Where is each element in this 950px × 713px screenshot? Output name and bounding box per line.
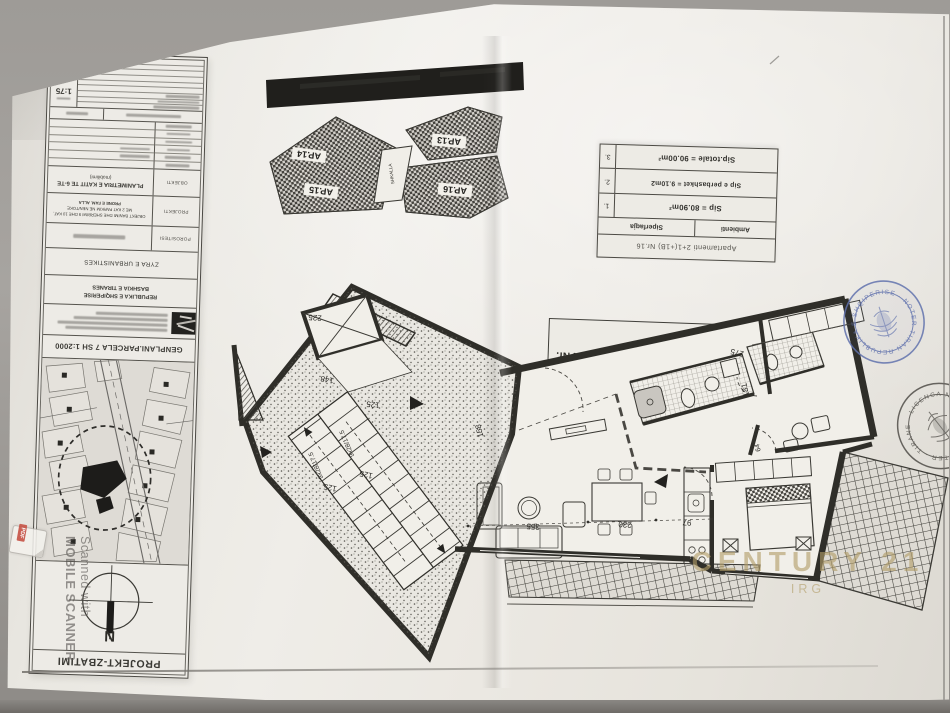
scanned-paper-sheet: A- 1:75 bbox=[0, 0, 950, 713]
sink bbox=[705, 377, 719, 391]
scanner-watermark-text: Scanned with MOBILE SCANNER bbox=[63, 536, 92, 711]
eagle-emblem bbox=[918, 403, 950, 449]
right-edge-crease bbox=[943, 16, 945, 702]
dim-kitchen: 97 bbox=[682, 518, 692, 527]
pen-mark bbox=[770, 56, 779, 64]
shower bbox=[633, 385, 667, 419]
scanned-floor-plan-photo: { "title_block": { "sheet_code": "A-", "… bbox=[0, 0, 950, 713]
keyplan-ap13-label: AP.13 bbox=[437, 135, 462, 147]
sink bbox=[790, 346, 802, 358]
washing-machine bbox=[720, 358, 739, 377]
dim-stair-top: 125 bbox=[365, 399, 380, 409]
floor-plan-drawing: AP.14 AP.15 AP.13 AP.16 SHKALLA bbox=[0, 0, 950, 713]
dim-living: 355 bbox=[526, 522, 540, 532]
sheet-code: A- bbox=[51, 56, 78, 79]
apartment-plan: 225 148 125 125 125 9x28/17.5 9x28/17.5 … bbox=[234, 287, 948, 657]
adjacent-structure bbox=[234, 345, 263, 426]
keyplan-ap16-label: AP.16 bbox=[443, 184, 468, 196]
dim-elevator: 225 bbox=[308, 313, 322, 323]
pdf-icon-label: PDF bbox=[17, 524, 28, 542]
balcony-bottom bbox=[505, 560, 760, 607]
dim-dining: 230 bbox=[618, 520, 632, 530]
stair-core bbox=[245, 287, 519, 657]
key-plan: AP.14 AP.15 AP.13 AP.16 SHKALLA bbox=[266, 62, 524, 218]
pdf-file-icon: PDF bbox=[8, 525, 47, 559]
photo-background-edge bbox=[0, 700, 950, 713]
